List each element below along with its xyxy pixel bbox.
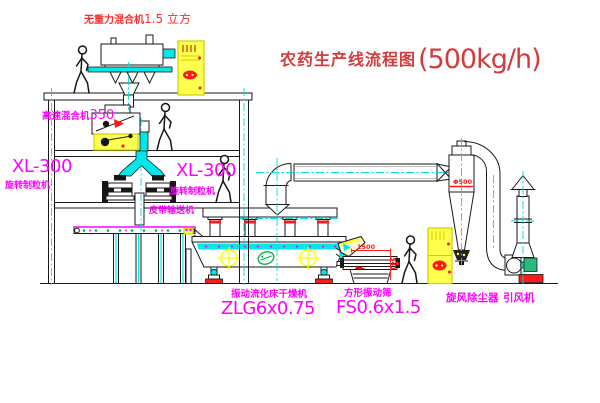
cyclone-diameter-dimension: Φ500 <box>453 179 472 186</box>
induced-draft-fan <box>505 255 543 283</box>
cyclone-label: 旋风除尘器 <box>446 293 499 304</box>
dryer-feet <box>206 267 333 284</box>
title-text: 农药生产线流程图 <box>280 52 416 68</box>
gravity-mixer-label: 无重力混合机1.5 立方 <box>84 10 191 26</box>
high-speed-mixer-name: 高速混合机 <box>42 111 90 122</box>
control-cabinet-top <box>178 41 204 95</box>
title-capacity: (500kg/h) <box>418 46 541 73</box>
worker-figure-ground <box>402 236 417 283</box>
sieve-length-dimension: 1500 <box>357 244 375 251</box>
fan-label: 引风机 <box>503 293 535 304</box>
granulator-left-model: XL-300 <box>12 158 72 176</box>
granulator-right-model: XL-300 <box>176 162 236 180</box>
process-flow-diagram: 无重力混合机1.5 立方 农药生产线流程图 (500kg/h) 高速混合机350… <box>0 0 600 403</box>
dryer-model-label: ZLG6x0.75 <box>221 300 315 318</box>
granulator-left-machine <box>102 181 134 203</box>
high-speed-mixer-label: 高速混合机350 <box>42 106 114 122</box>
sieve-height-dimension: 541 <box>390 257 397 271</box>
granulator-left-name: 旋转制粒机 <box>5 182 50 191</box>
gravity-mixer-name: 无重力混合机 <box>84 15 144 26</box>
control-cabinet-right <box>428 228 452 284</box>
worker-figure-roof <box>74 46 89 93</box>
high-speed-mixer-model: 350 <box>90 108 115 123</box>
page-title: 农药生产线流程图 (500kg/h) <box>280 46 541 73</box>
belt-conveyor-label: 皮带输送机 <box>149 207 194 216</box>
conveyor-legs <box>114 234 186 284</box>
dryer-exhaust-stubs <box>208 217 330 237</box>
sieve-model-label: FS0.6x1.5 <box>336 299 421 317</box>
granulator-right-name: 旋转制粒机 <box>170 188 215 197</box>
gravity-mixer-spec: 1.5 立方 <box>144 12 191 26</box>
belt-conveyor-machine <box>74 227 217 284</box>
worker-figure-floor2 <box>157 104 172 151</box>
fluid-bed-dryer-machine <box>184 208 354 284</box>
exhaust-duct <box>264 163 438 215</box>
granulator-downpipe <box>135 193 144 225</box>
